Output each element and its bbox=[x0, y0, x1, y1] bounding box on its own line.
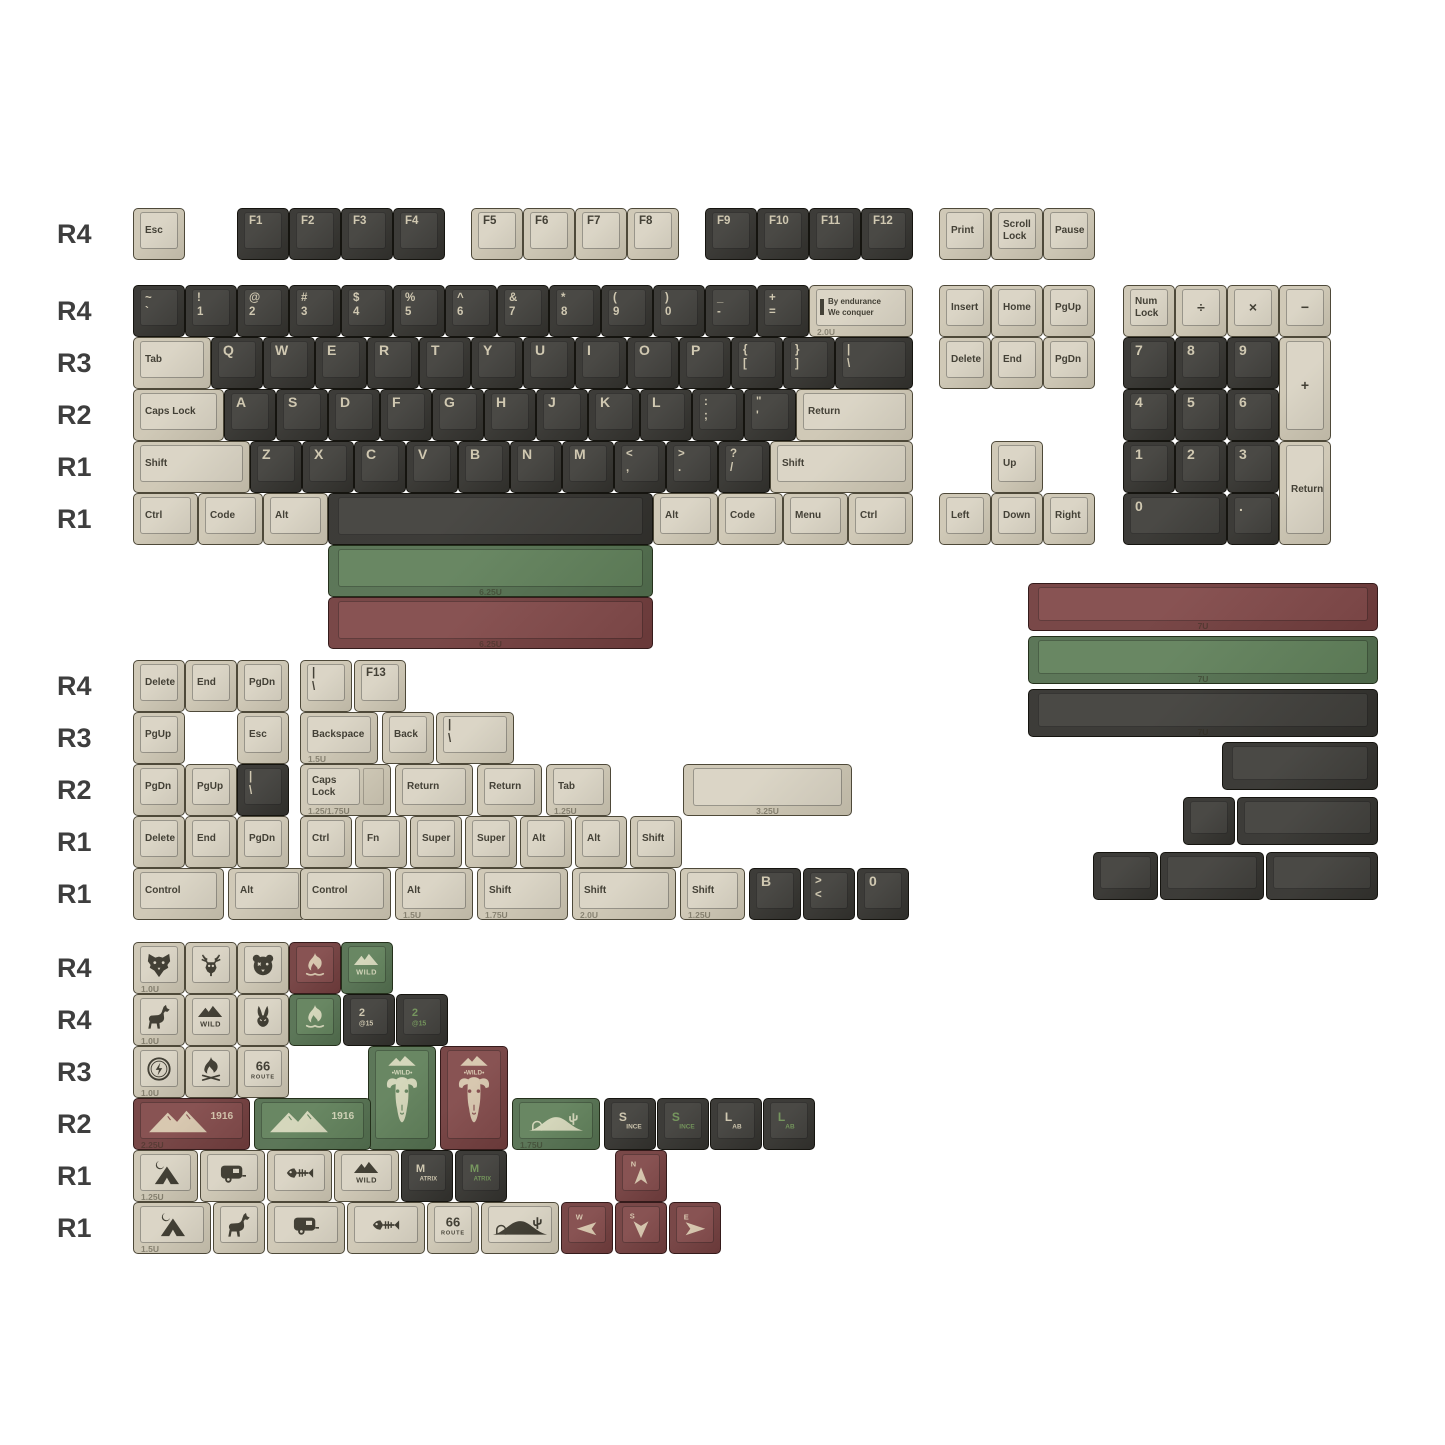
key-bear bbox=[237, 942, 289, 994]
keycap-top bbox=[140, 998, 178, 1035]
key-legend: Shift bbox=[688, 885, 718, 897]
key-super: Super bbox=[465, 816, 517, 868]
key-cactus: 1.75U bbox=[512, 1098, 600, 1150]
key-legend: Backspace bbox=[308, 729, 368, 741]
camper-icon bbox=[292, 1212, 320, 1238]
keycap-top: F8 bbox=[634, 212, 672, 249]
keycap-top: Shift bbox=[637, 820, 675, 857]
key-caps-lock: Caps Lock bbox=[133, 389, 224, 441]
key-wild: WILD bbox=[185, 994, 237, 1046]
keycap-top bbox=[140, 1050, 178, 1087]
keycap-top: O bbox=[634, 341, 672, 378]
keycap-top bbox=[1244, 801, 1371, 834]
key-legend: F5 bbox=[479, 213, 500, 231]
key-tent: 1.25U bbox=[133, 1150, 198, 1202]
keycap-top: |\ bbox=[443, 716, 507, 753]
keycap-top: U bbox=[530, 341, 568, 378]
keycap-top bbox=[244, 998, 282, 1035]
key-legend: + bbox=[1297, 377, 1313, 394]
key-legend: V bbox=[414, 446, 431, 463]
mtn1916-icon: 1916 bbox=[146, 1107, 238, 1135]
keycap-top: Delete bbox=[140, 664, 178, 701]
key-legend: M bbox=[570, 446, 590, 463]
campfire-icon bbox=[199, 1056, 223, 1082]
key-tent: 1.5U bbox=[133, 1202, 211, 1254]
key-blank: 3.25U bbox=[683, 764, 852, 816]
keycap-top: 2 bbox=[1182, 445, 1220, 482]
row-label: R4 bbox=[57, 953, 92, 984]
key-legend: B bbox=[757, 873, 775, 890]
key-a: A bbox=[224, 389, 276, 441]
keycap-set-board: EscF1F2F3F4F5F6F7F8F9F10F11F12~`!1@2#3$4… bbox=[0, 0, 1445, 1445]
keycap-top bbox=[274, 1154, 325, 1191]
key-legend: N bbox=[518, 446, 536, 463]
key-print: Print bbox=[939, 208, 991, 260]
key-k: K bbox=[588, 389, 640, 441]
dog-icon bbox=[146, 1004, 172, 1030]
keycap-top: 66ROUTE bbox=[244, 1050, 282, 1087]
size-label: 1.25U bbox=[688, 910, 711, 920]
arrow-e-icon: E bbox=[681, 1211, 709, 1239]
key-pgup: PgUp bbox=[133, 712, 185, 764]
matrix-icon: MATRIX bbox=[414, 1161, 440, 1185]
keycap-top: Tab bbox=[140, 341, 204, 378]
keycap-top: WILD bbox=[348, 946, 386, 983]
key-legend: D bbox=[336, 394, 354, 411]
keycap-top: C bbox=[361, 445, 399, 482]
key-q: Q bbox=[211, 337, 263, 389]
key-legend: R bbox=[375, 342, 393, 359]
key-legend: Caps Lock bbox=[141, 406, 200, 418]
key-7: &7 bbox=[497, 285, 549, 337]
size-label: 7U bbox=[1198, 727, 1209, 737]
keycap-top: Pause bbox=[1050, 212, 1088, 249]
key-pgdn: PgDn bbox=[237, 816, 289, 868]
key-return: Return bbox=[1279, 441, 1331, 545]
key-legend: Return bbox=[804, 406, 844, 418]
keycap-top: }] bbox=[790, 341, 828, 378]
key-legend: !1 bbox=[193, 290, 207, 321]
key-legend: End bbox=[193, 677, 220, 689]
keycap-top: N bbox=[622, 1154, 660, 1191]
size-label: 7U bbox=[1198, 621, 1209, 631]
key-alt: Alt bbox=[228, 868, 306, 920]
key-symbol: |\ bbox=[436, 712, 514, 764]
key-legend: NumLock bbox=[1131, 296, 1162, 319]
key-blank bbox=[1160, 852, 1264, 900]
keycap-top bbox=[338, 497, 643, 535]
row-label: R1 bbox=[57, 504, 92, 535]
svg-text:ROUTE: ROUTE bbox=[441, 1230, 465, 1236]
arrow-s-icon: S bbox=[627, 1210, 655, 1240]
keycap-top: F4 bbox=[400, 212, 438, 249]
route66-icon: 66ROUTE bbox=[440, 1212, 466, 1238]
key-legend: Tab bbox=[141, 354, 166, 366]
key-legend: Alt bbox=[528, 833, 549, 845]
keycap-top: Alt bbox=[270, 497, 321, 534]
keycap-top: R bbox=[374, 341, 412, 378]
keycap-top: #3 bbox=[296, 289, 334, 326]
keycap-top: (9 bbox=[608, 289, 646, 326]
key-legend: F9 bbox=[713, 213, 734, 231]
key-legend: O bbox=[635, 342, 654, 359]
key-blank: 7U bbox=[1028, 636, 1378, 684]
key-legend: F8 bbox=[635, 213, 656, 231]
keycap-top: ^6 bbox=[452, 289, 490, 326]
keycap-top: 2@15 bbox=[403, 998, 441, 1035]
keycap-top: End bbox=[998, 341, 1036, 378]
size-label: 1.25U bbox=[554, 806, 577, 816]
key-end: End bbox=[991, 337, 1043, 389]
keycap-top: V bbox=[413, 445, 451, 482]
keycap-top: ~` bbox=[140, 289, 178, 326]
key-legend: W bbox=[271, 342, 292, 359]
key-shift: Shift1.25U bbox=[680, 868, 745, 920]
key-code: Code bbox=[718, 493, 783, 545]
k215-icon: 2@15 bbox=[410, 1005, 434, 1029]
keycap-top bbox=[192, 946, 230, 983]
key-lab: LAB bbox=[763, 1098, 815, 1150]
key-scroll-lock: ScrollLock bbox=[991, 208, 1043, 260]
svg-text:WILD: WILD bbox=[356, 967, 377, 976]
keycap-top: "' bbox=[751, 393, 789, 430]
keycap-top bbox=[338, 601, 643, 639]
keycap-top: PgDn bbox=[140, 768, 178, 805]
keycap-top: @2 bbox=[244, 289, 282, 326]
key-f9: F9 bbox=[705, 208, 757, 260]
keycap-top: A bbox=[231, 393, 269, 430]
camper-icon bbox=[219, 1160, 247, 1186]
row-label: R3 bbox=[57, 1057, 92, 1088]
key-arrow-s: S bbox=[615, 1202, 667, 1254]
fish-icon bbox=[285, 1161, 315, 1185]
key-lab: LAB bbox=[710, 1098, 762, 1150]
svg-text:1916: 1916 bbox=[331, 1111, 354, 1122]
key-legend: C bbox=[362, 446, 380, 463]
keycap-top: H bbox=[491, 393, 529, 430]
key-shift: Shift bbox=[630, 816, 682, 868]
key-legend: Insert bbox=[947, 302, 982, 314]
key-legend: A bbox=[232, 394, 250, 411]
key-legend: 9 bbox=[1235, 342, 1251, 359]
key-flame bbox=[289, 994, 341, 1046]
key-legend: K bbox=[596, 394, 614, 411]
key-legend: ÷ bbox=[1193, 299, 1209, 316]
key-legend: Code bbox=[726, 510, 759, 522]
key-s: S bbox=[276, 389, 328, 441]
key-legend: Home bbox=[999, 302, 1035, 314]
key-legend: F2 bbox=[297, 213, 318, 231]
key-8: *8 bbox=[549, 285, 601, 337]
key-legend: Print bbox=[947, 225, 978, 237]
key-legend: PgDn bbox=[245, 677, 279, 689]
key-legend: S bbox=[284, 394, 301, 411]
key-legend: Menu bbox=[791, 510, 825, 522]
keycap-top: 0 bbox=[1130, 497, 1220, 534]
size-label: 1.0U bbox=[141, 1088, 159, 1098]
keycap-top: I bbox=[582, 341, 620, 378]
keycap-top: Left bbox=[946, 497, 984, 534]
key-legend: 0 bbox=[1131, 498, 1147, 515]
key-legend: PgDn bbox=[141, 781, 175, 793]
keycap-top: F bbox=[387, 393, 425, 430]
since-icon: SINCE bbox=[670, 1109, 696, 1133]
key-symbol: >. bbox=[666, 441, 718, 493]
row-label: R4 bbox=[57, 219, 92, 250]
key-down: Down bbox=[991, 493, 1043, 545]
key-legend: × bbox=[1245, 299, 1261, 316]
svg-text:2: 2 bbox=[359, 1007, 365, 1019]
key-x: X bbox=[302, 441, 354, 493]
svg-text:ATRIX: ATRIX bbox=[474, 1176, 492, 1182]
key-legend: Delete bbox=[141, 677, 178, 689]
tent-icon bbox=[152, 1160, 180, 1186]
row-label: R1 bbox=[57, 827, 92, 858]
keycap-top: 2@15 bbox=[350, 998, 388, 1035]
svg-text:S: S bbox=[630, 1211, 635, 1220]
cactus-icon bbox=[491, 1213, 549, 1237]
key-mtn1916: 1916 bbox=[254, 1098, 371, 1150]
key-f12: F12 bbox=[861, 208, 913, 260]
keycap-top: ?/ bbox=[725, 445, 763, 482]
keycap-top: F6 bbox=[530, 212, 568, 249]
keycap-top: × bbox=[1234, 289, 1272, 326]
key-f3: F3 bbox=[341, 208, 393, 260]
keycap-top: !1 bbox=[192, 289, 230, 326]
keycap-top: F1 bbox=[244, 212, 282, 249]
key-blank bbox=[1222, 742, 1378, 790]
keycap-top: Tab bbox=[553, 768, 604, 805]
keycap-top: 9 bbox=[1234, 341, 1272, 378]
keycap-top: MATRIX bbox=[408, 1154, 446, 1191]
key-legend: F4 bbox=[401, 213, 422, 231]
keycap-top: T bbox=[426, 341, 464, 378]
key-5: 5 bbox=[1175, 389, 1227, 441]
key-legend: E bbox=[323, 342, 340, 359]
key-legend: Alt bbox=[583, 833, 604, 845]
keycap-top: − bbox=[1286, 289, 1324, 326]
keycap-top: Return bbox=[803, 393, 906, 430]
keycap-top: . bbox=[1234, 497, 1272, 534]
keycap-top: 3 bbox=[1234, 445, 1272, 482]
key-since: SINCE bbox=[604, 1098, 656, 1150]
keycap-top: Alt bbox=[402, 872, 466, 909]
row-label: R1 bbox=[57, 1213, 92, 1244]
key-blank bbox=[328, 493, 653, 545]
keycap-top: S bbox=[622, 1206, 660, 1243]
key-f1: F1 bbox=[237, 208, 289, 260]
key-legend: :; bbox=[700, 394, 712, 425]
keycap-top: Delete bbox=[140, 820, 178, 857]
key-e: E bbox=[315, 337, 367, 389]
keycap-top: PgUp bbox=[1050, 289, 1088, 326]
buffalo-icon: •WILD• bbox=[456, 1054, 492, 1136]
key-legend: |\ bbox=[245, 769, 256, 800]
key-code: Code bbox=[198, 493, 263, 545]
keycap-top: Ctrl bbox=[855, 497, 906, 534]
keycap-top: K bbox=[595, 393, 633, 430]
key-pgdn: PgDn bbox=[1043, 337, 1095, 389]
size-label: 2.25U bbox=[141, 1140, 164, 1150]
keycap-top: 4 bbox=[1130, 393, 1168, 430]
keycap-top: Home bbox=[998, 289, 1036, 326]
svg-text:•WILD•: •WILD• bbox=[464, 1069, 485, 1076]
keycap-top bbox=[1038, 693, 1368, 727]
size-label: 2.0U bbox=[580, 910, 598, 920]
key-legend: Super bbox=[473, 833, 509, 845]
key-left: Left bbox=[939, 493, 991, 545]
key-back: Back bbox=[382, 712, 434, 764]
keycap-top: Insert bbox=[946, 289, 984, 326]
key-legend: 1 bbox=[1131, 446, 1147, 463]
key-legend: >. bbox=[674, 446, 689, 477]
keycap-top bbox=[274, 1206, 338, 1243]
key-legend: )0 bbox=[661, 290, 675, 321]
key-symbol: × bbox=[1227, 285, 1279, 337]
row-label: R3 bbox=[57, 723, 92, 754]
deer-icon bbox=[198, 952, 224, 978]
key-legend: F1 bbox=[245, 213, 266, 231]
key-legend: 0 bbox=[865, 873, 881, 890]
size-label: 6.25U bbox=[479, 587, 502, 597]
key-legend: F6 bbox=[531, 213, 552, 231]
keycap-top: Z bbox=[257, 445, 295, 482]
key-arrow-e: E bbox=[669, 1202, 721, 1254]
key-symbol: |\ bbox=[300, 660, 352, 712]
key-shift: Shift bbox=[770, 441, 913, 493]
key-legend: Shift bbox=[141, 458, 171, 470]
size-label: 7U bbox=[1198, 674, 1209, 684]
key-super: Super bbox=[410, 816, 462, 868]
key-legend: Left bbox=[947, 510, 973, 522]
key-2: @2 bbox=[237, 285, 289, 337]
svg-text:2: 2 bbox=[412, 1007, 418, 1019]
keycap-top: 7 bbox=[1130, 341, 1168, 378]
key-legend: PgDn bbox=[1051, 354, 1085, 366]
key-b: B bbox=[458, 441, 510, 493]
keycap-top: Super bbox=[417, 820, 455, 857]
keycap-top: Return bbox=[484, 768, 535, 805]
keycap-top: *8 bbox=[556, 289, 594, 326]
key-symbol: ÷ bbox=[1175, 285, 1227, 337]
keycap-top: B bbox=[756, 872, 794, 909]
arrow-n-icon: N bbox=[628, 1158, 654, 1188]
key-legend: CapsLock bbox=[308, 775, 340, 798]
size-label: 1.75U bbox=[485, 910, 508, 920]
key-legend: Alt bbox=[271, 510, 292, 522]
key-campfire bbox=[185, 1046, 237, 1098]
key-legend: J bbox=[544, 394, 560, 411]
key-1: 1 bbox=[1123, 441, 1175, 493]
keycap-top: Y bbox=[478, 341, 516, 378]
keycap-top: G bbox=[439, 393, 477, 430]
key-9: 9 bbox=[1227, 337, 1279, 389]
keycap-top: Fn bbox=[362, 820, 400, 857]
key-blank bbox=[1183, 797, 1235, 845]
keycap-top: Alt bbox=[235, 872, 299, 909]
key-legend: Y bbox=[479, 342, 496, 359]
key-symbol: }] bbox=[783, 337, 835, 389]
key-0: 0 bbox=[1123, 493, 1227, 545]
key-by-endurance-we-conquer: By enduranceWe conquer2.0U bbox=[809, 285, 913, 337]
key-r: R bbox=[367, 337, 419, 389]
key-legend: Tab bbox=[554, 781, 579, 793]
key-y: Y bbox=[471, 337, 523, 389]
keycap-top: F3 bbox=[348, 212, 386, 249]
key-symbol: :; bbox=[692, 389, 744, 441]
keycap-top bbox=[693, 768, 842, 806]
keycap-top: Caps Lock bbox=[140, 393, 217, 430]
key-legend: PgUp bbox=[141, 729, 175, 741]
svg-text:@15: @15 bbox=[412, 1020, 427, 1027]
key-legend: F13 bbox=[362, 665, 390, 683]
key-legend: Fn bbox=[363, 833, 383, 845]
buffalo-icon: •WILD• bbox=[384, 1054, 420, 1136]
keycap-top bbox=[1038, 587, 1368, 621]
svg-text:AB: AB bbox=[785, 1123, 795, 1130]
dog-icon bbox=[226, 1212, 252, 1238]
key-right: Right bbox=[1043, 493, 1095, 545]
keycap-top: Code bbox=[725, 497, 776, 534]
key-legend: 8 bbox=[1183, 342, 1199, 359]
key-alt: Alt bbox=[653, 493, 718, 545]
keycap-top: 66ROUTE bbox=[434, 1206, 472, 1243]
row-label: R2 bbox=[57, 775, 92, 806]
key-num-lock: NumLock bbox=[1123, 285, 1175, 337]
keycap-top bbox=[1100, 856, 1151, 889]
keycap-top: Esc bbox=[140, 212, 178, 249]
size-label: 1.5U bbox=[403, 910, 421, 920]
key-legend: F10 bbox=[765, 213, 793, 231]
key-legend: Shift bbox=[580, 885, 610, 897]
keycap-top: Ctrl bbox=[307, 820, 345, 857]
key-symbol: ~` bbox=[133, 285, 185, 337]
size-label: 1.25U bbox=[141, 1192, 164, 1202]
keycap-top: ScrollLock bbox=[998, 212, 1036, 249]
keycap-top bbox=[140, 1154, 191, 1191]
keycap-top: )0 bbox=[660, 289, 698, 326]
key-legend: ?/ bbox=[726, 446, 741, 477]
keycap-top: LAB bbox=[770, 1102, 808, 1139]
key-route66: 66ROUTE bbox=[237, 1046, 289, 1098]
keycap-top: X bbox=[309, 445, 347, 482]
since-icon: SINCE bbox=[617, 1109, 643, 1133]
svg-text:W: W bbox=[576, 1212, 584, 1221]
svg-text:ROUTE: ROUTE bbox=[251, 1074, 275, 1080]
key-end: End bbox=[185, 660, 237, 712]
key-pgdn: PgDn bbox=[133, 764, 185, 816]
key-legend: PgUp bbox=[1051, 302, 1085, 314]
key-end: End bbox=[185, 816, 237, 868]
keycap-top bbox=[140, 1206, 204, 1243]
key-blank: 6.25U bbox=[328, 597, 653, 649]
size-label: 1.5U bbox=[308, 754, 326, 764]
compass-icon bbox=[146, 1056, 172, 1082]
keycap-top: MATRIX bbox=[462, 1154, 500, 1191]
key-alt: Alt1.5U bbox=[395, 868, 473, 920]
keycap-top: End bbox=[192, 664, 230, 701]
size-label: 2.0U bbox=[817, 327, 835, 337]
k215-icon: 2@15 bbox=[357, 1005, 381, 1029]
key-buffalo: •WILD• bbox=[368, 1046, 436, 1150]
key-legend: Delete bbox=[947, 354, 984, 366]
svg-text:INCE: INCE bbox=[626, 1123, 642, 1130]
keycap-top: Shift bbox=[777, 445, 906, 482]
key-blank: 7U bbox=[1028, 689, 1378, 737]
key-return: Return bbox=[796, 389, 913, 441]
key-u: U bbox=[523, 337, 575, 389]
row-label: R2 bbox=[57, 1109, 92, 1140]
